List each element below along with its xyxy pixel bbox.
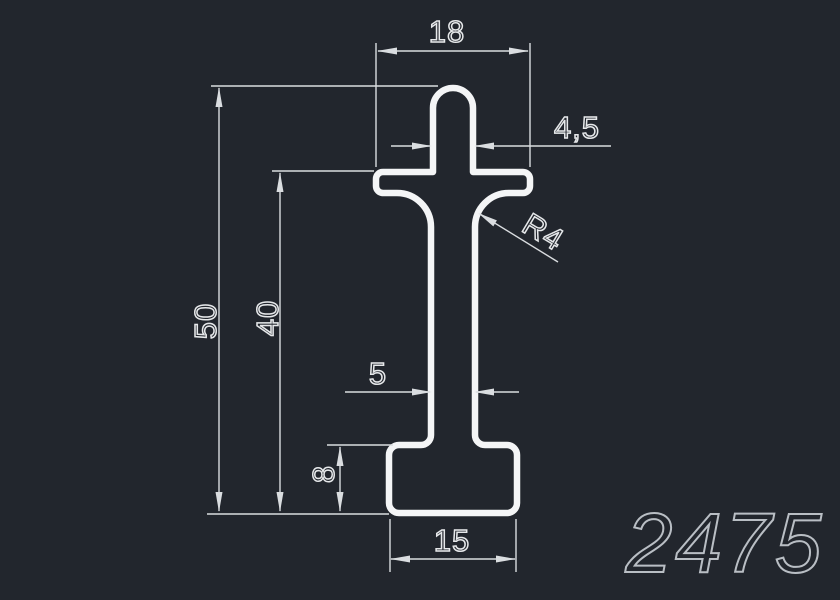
dimension-label: 8 <box>306 465 341 483</box>
arrowhead-icon <box>216 492 223 512</box>
dimension-label: 50 <box>188 303 223 339</box>
arrowhead-icon <box>509 48 529 55</box>
cad-drawing: 18 4,5 R4 50 4 <box>0 0 840 600</box>
dimension-label: 40 <box>250 300 285 336</box>
arrowhead-icon <box>337 492 344 512</box>
dimension-stem-width: 4,5 <box>391 110 611 150</box>
arrowhead-icon <box>496 556 516 563</box>
dimension-fillet-radius: R4 <box>478 206 570 262</box>
arrowhead-icon <box>277 492 284 512</box>
arrowhead-icon <box>390 556 410 563</box>
arrowhead-icon <box>474 143 494 150</box>
arrowhead-icon <box>277 172 284 192</box>
drawing-canvas: 18 4,5 R4 50 4 <box>0 0 840 600</box>
dimension-label: R4 <box>517 206 571 257</box>
part-number: 2475 <box>625 496 825 590</box>
arrowhead-icon <box>337 446 344 466</box>
arrowhead-icon <box>377 48 397 55</box>
dimension-base-width: 15 <box>390 519 516 572</box>
profile-outline <box>376 88 530 513</box>
arrowhead-icon <box>478 213 497 226</box>
dimension-base-height: 8 <box>306 445 393 512</box>
arrowhead-icon <box>412 143 432 150</box>
dimension-label: 18 <box>429 14 465 49</box>
arrowhead-icon <box>216 87 223 107</box>
dimension-body-height: 40 <box>250 171 374 512</box>
dimension-label: 5 <box>369 356 387 391</box>
dimension-label: 15 <box>434 523 470 558</box>
dimension-label: 4,5 <box>554 110 600 145</box>
